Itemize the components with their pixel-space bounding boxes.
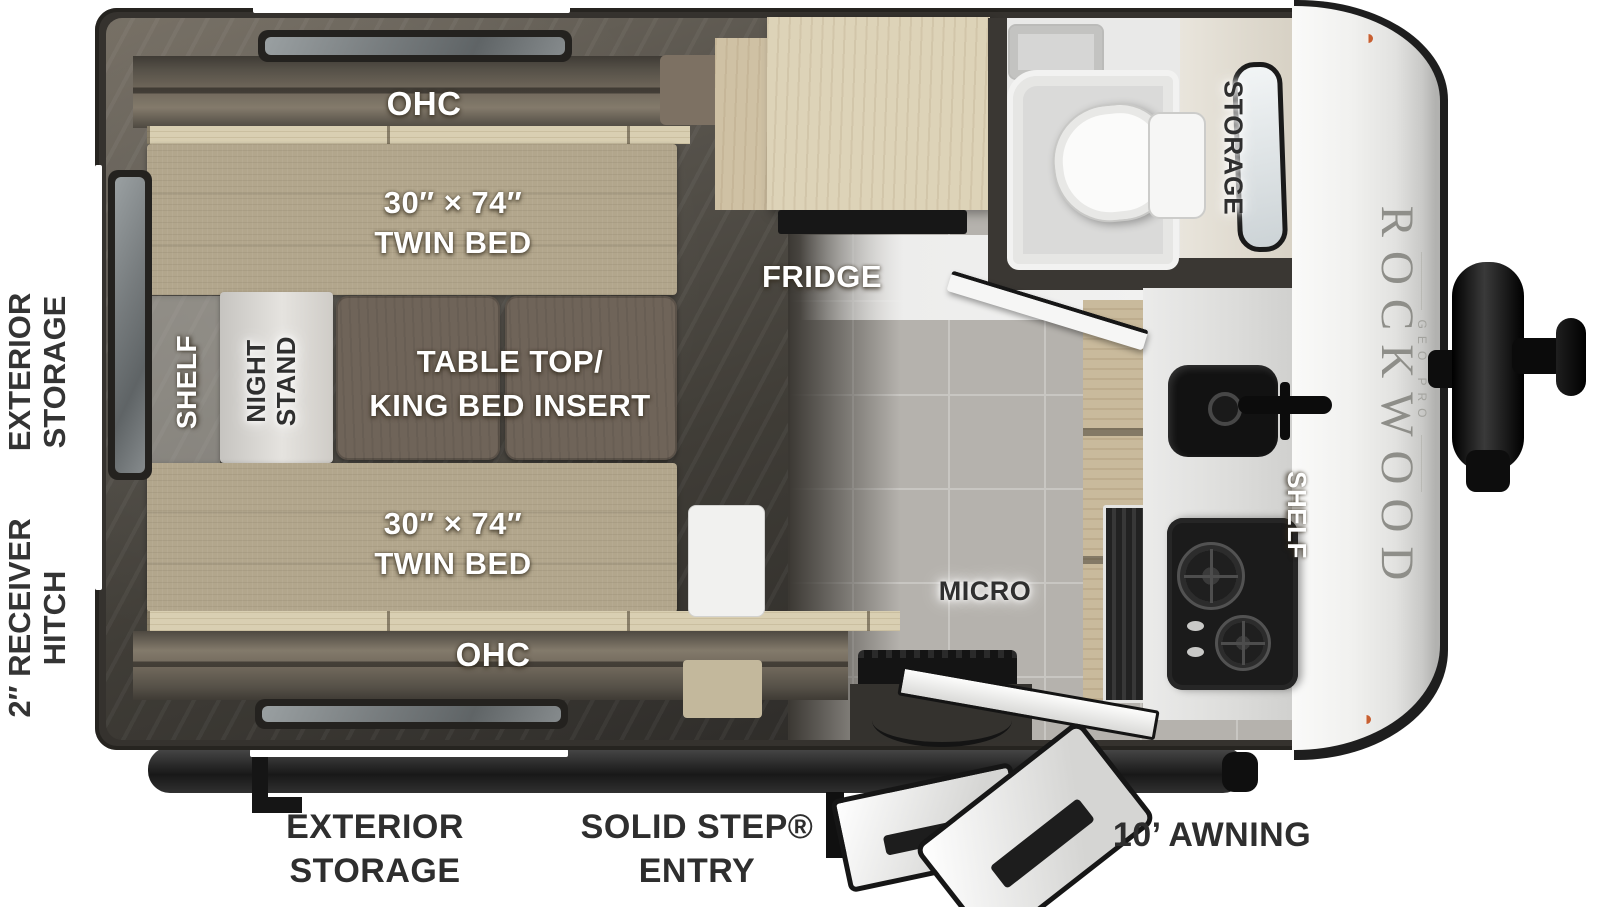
label-line: SOLID STEP® [537,806,857,850]
fridge-cabinet [767,17,990,210]
water-heater-door [1103,505,1147,703]
fridge-side-wing [715,38,767,210]
label-solid-step-entry: SOLID STEP® ENTRY [537,806,857,893]
wardrobe-cabinet [683,660,762,718]
label-ohc-bottom: OHC [413,636,573,674]
bathroom-left-wall [988,18,1007,290]
tongue-jack-foot [1466,450,1510,492]
label-twin-bed-top: 30″ × 74″ TWIN BED [313,183,593,264]
window-bottom [255,699,568,729]
label-line: 2″ RECEIVER [3,463,38,773]
awning-white-strip [250,749,568,757]
cooktop-knob-1 [1187,621,1204,631]
bed-size: 30″ × 74″ [313,504,593,544]
window-glass [262,706,561,722]
toilet-tank [1148,112,1206,219]
cooktop-knob-2 [1187,647,1204,657]
label-receiver-hitch: 2″ RECEIVER HITCH [3,463,69,773]
entry-side-cabinet [688,505,765,617]
marker-light-top [1364,34,1373,43]
tongue-jack-crank-handle [1556,318,1586,396]
label-line: ENTRY [537,850,857,894]
baggage-door-strip-top [253,4,570,13]
bed-size: 30″ × 74″ [313,183,593,223]
label-ohc-top: OHC [344,85,504,123]
label-line: KING BED INSERT [360,384,660,428]
bed-platform-edge-bottom [147,611,900,631]
label-line: EXTERIOR [215,806,535,850]
label-line: HITCH [38,463,73,773]
cooktop-burner-large [1177,542,1245,610]
label-shelf-bedroom: SHELF [171,297,207,467]
marker-light-bottom [1362,715,1371,724]
label-nightstand: NIGHT STAND [242,301,304,461]
window-top [258,30,572,62]
label-exterior-storage-bottom: EXTERIOR STORAGE [215,806,535,893]
window-glass [115,177,145,473]
floorplan-canvas: EXTERIOR STORAGE 2″ RECEIVER HITCH [0,0,1600,907]
faucet-handle [1280,382,1290,440]
bed-name: TWIN BED [313,544,593,584]
cooktop-burner-small [1215,615,1271,671]
label-table-top: TABLE TOP/ KING BED INSERT [360,340,660,428]
fridge-vent [778,210,967,234]
label-fridge: FRIDGE [722,259,922,295]
bed-backrest-cushion [660,55,722,125]
baggage-door-strip-left [95,165,102,590]
brand-rule-right [1422,435,1423,493]
label-shelf-kitchen: SHELF [1282,440,1312,590]
label-twin-bed-bottom: 30″ × 74″ TWIN BED [313,504,593,585]
bed-name: TWIN BED [313,223,593,263]
label-line: STORAGE [215,850,535,894]
brand-series-text: GEO PRO [1415,320,1429,425]
awning-roll-endcap [1222,752,1258,792]
bed-platform-edge-top [147,126,690,144]
sink-drain [1208,392,1242,426]
brand-rule-left [1422,252,1423,310]
label-micro: MICRO [885,576,1085,607]
label-storage-front: STORAGE [1217,56,1249,241]
label-line: NIGHT [242,301,272,461]
window-glass [265,37,565,55]
label-line: TABLE TOP/ [360,340,660,384]
label-line: STAND [272,301,302,461]
window-left [108,170,152,480]
label-awning: 10’ AWNING [1052,814,1372,858]
